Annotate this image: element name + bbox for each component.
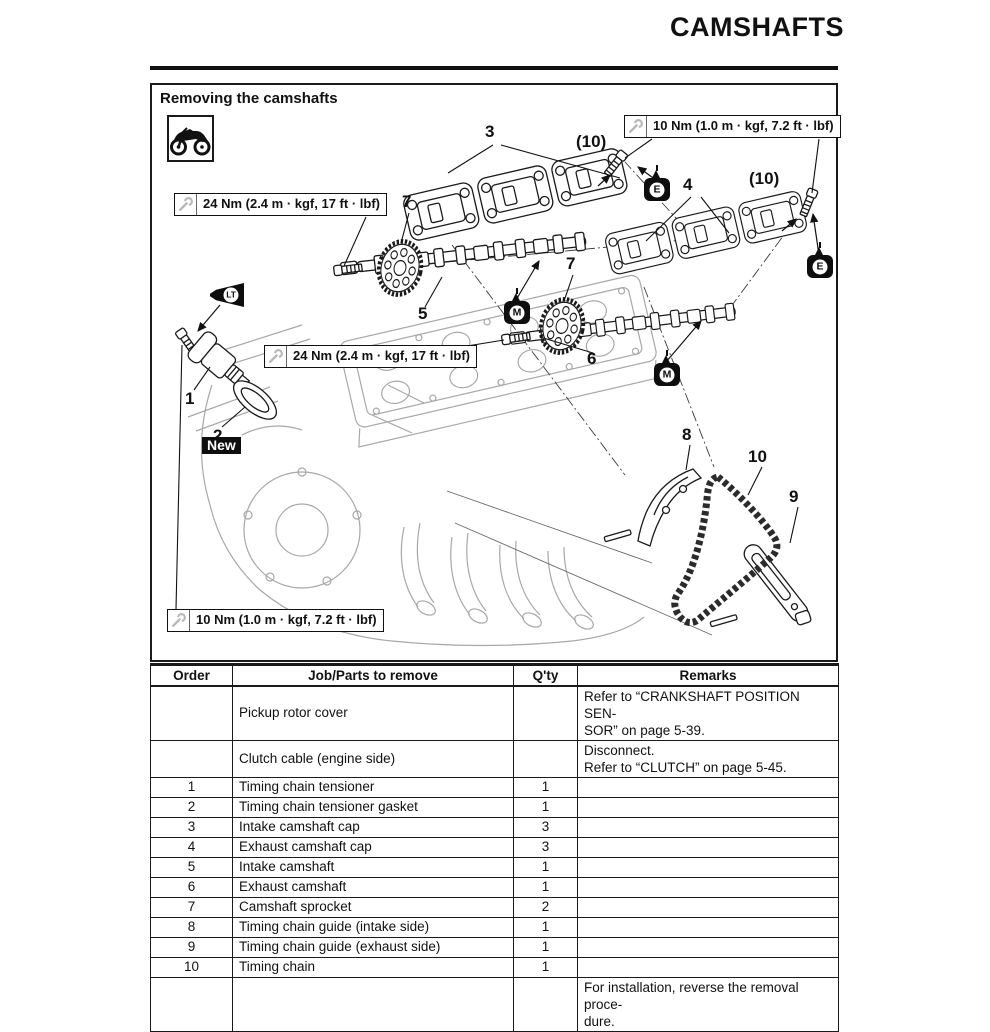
cell-job: Exhaust camshaft [233,878,514,898]
camshaft-sprocket-intake [373,237,427,300]
cell-order: 9 [151,938,233,958]
table-row: For installation, reverse the removal pr… [151,978,839,1032]
table-row: 4 Exhaust camshaft cap 3 [151,838,839,858]
engine-oil-letter: E [813,259,828,274]
cell-qty [514,741,578,778]
cell-qty [514,686,578,741]
page-title: CAMSHAFTS [670,12,844,43]
cell-order: 1 [151,778,233,798]
cell-order: 5 [151,858,233,878]
manual-page: { "page": { "title": "CAMSHAFTS" }, "dia… [0,0,990,990]
table-row: 8 Timing chain guide (intake side) 1 [151,918,839,938]
cell-order: 3 [151,818,233,838]
header-order: Order [151,665,233,687]
new-part-tag: New [202,437,241,454]
torque-callout-middle: 24 Nm (2.4 m · kgf, 17 ft · lbf) [264,345,477,368]
cell-job [233,978,514,1032]
callout-1: 1 [185,390,194,407]
cell-job: Timing chain [233,958,514,978]
torque-value: 24 Nm (2.4 m · kgf, 17 ft · lbf) [197,194,386,215]
callout-bolt-10-top: (10) [576,133,606,150]
section-heading: Removing the camshafts [160,90,338,107]
table-row: Clutch cable (engine side) Disconnect. R… [151,741,839,778]
cell-job: Timing chain guide (intake side) [233,918,514,938]
callout-3: 3 [485,123,494,140]
cell-job: Clutch cable (engine side) [233,741,514,778]
cell-order [151,978,233,1032]
torque-value: 24 Nm (2.4 m · kgf, 17 ft · lbf) [287,346,476,367]
cell-order: 6 [151,878,233,898]
cell-remarks [578,858,839,878]
cell-qty [514,978,578,1032]
moly-grease-icon: M [654,363,680,386]
cell-job: Intake camshaft cap [233,818,514,838]
motorcycle-icon [167,115,214,162]
table-row: 10 Timing chain 1 [151,958,839,978]
cell-qty: 1 [514,778,578,798]
wrench-icon [625,116,647,137]
header-qty: Q'ty [514,665,578,687]
callout-5: 5 [418,305,427,322]
callout-8: 8 [682,426,691,443]
table-row: 5 Intake camshaft 1 [151,858,839,878]
header-remarks: Remarks [578,665,839,687]
table-row: 9 Timing chain guide (exhaust side) 1 [151,938,839,958]
cell-remarks [578,878,839,898]
cell-remarks [578,818,839,838]
cell-order: 2 [151,798,233,818]
chain-guide-intake [638,469,701,546]
torque-value: 10 Nm (1.0 m · kgf, 7.2 ft · lbf) [647,116,840,137]
cell-qty: 1 [514,938,578,958]
cell-job: Timing chain tensioner gasket [233,798,514,818]
torque-callout-top-right: 10 Nm (1.0 m · kgf, 7.2 ft · lbf) [624,115,841,138]
torque-callout-upper-left: 24 Nm (2.4 m · kgf, 17 ft · lbf) [174,193,387,216]
cell-remarks [578,958,839,978]
cell-order: 4 [151,838,233,858]
table-row: 6 Exhaust camshaft 1 [151,878,839,898]
chain-pin [710,615,737,627]
title-rule [150,66,838,70]
cell-qty: 3 [514,818,578,838]
cell-qty: 1 [514,878,578,898]
table-row: 3 Intake camshaft cap 3 [151,818,839,838]
exploded-diagram [152,85,836,660]
cell-qty: 1 [514,918,578,938]
callout-6: 6 [587,350,596,367]
table-row: 7 Camshaft sprocket 2 [151,898,839,918]
moly-grease-letter: M [510,305,525,320]
header-job: Job/Parts to remove [233,665,514,687]
moly-grease-letter: M [660,367,675,382]
engine-oil-icon: E [807,255,833,278]
cell-qty: 3 [514,838,578,858]
cell-remarks: For installation, reverse the removal pr… [578,978,839,1032]
chain-pin [604,530,631,542]
cell-qty: 1 [514,958,578,978]
engine-oil-letter: E [650,182,665,197]
callout-7-intake: 7 [402,193,411,210]
moly-grease-icon: M [504,301,530,324]
intake-camshaft-caps [402,147,629,242]
cell-qty: 2 [514,898,578,918]
callout-10: 10 [748,448,767,465]
cell-remarks [578,778,839,798]
cell-remarks: Refer to “CRANKSHAFT POSITION SEN- SOR” … [578,686,839,741]
table-header-row: Order Job/Parts to remove Q'ty Remarks [151,665,839,687]
cell-job: Intake camshaft [233,858,514,878]
engine-oil-icon: E [644,178,670,201]
torque-callout-bottom-left: 10 Nm (1.0 m · kgf, 7.2 ft · lbf) [167,609,384,632]
cell-job: Exhaust camshaft cap [233,838,514,858]
parts-table: Order Job/Parts to remove Q'ty Remarks P… [150,663,839,1032]
cell-remarks [578,798,839,818]
table-row: 1 Timing chain tensioner 1 [151,778,839,798]
wrench-icon [265,346,287,367]
table-row: 2 Timing chain tensioner gasket 1 [151,798,839,818]
cell-remarks [578,838,839,858]
callout-9: 9 [789,488,798,505]
cell-order [151,686,233,741]
cell-order: 10 [151,958,233,978]
cell-remarks [578,938,839,958]
cell-remarks: Disconnect. Refer to “CLUTCH” on page 5-… [578,741,839,778]
cell-qty: 1 [514,798,578,818]
cell-order: 7 [151,898,233,918]
cell-order [151,741,233,778]
wrench-icon [168,610,190,631]
cell-qty: 1 [514,858,578,878]
cell-remarks [578,918,839,938]
cell-job: Camshaft sprocket [233,898,514,918]
table-body: Pickup rotor cover Refer to “CRANKSHAFT … [151,686,839,1032]
cell-job: Timing chain tensioner [233,778,514,798]
wrench-icon [175,194,197,215]
table-row: Pickup rotor cover Refer to “CRANKSHAFT … [151,686,839,741]
callout-4: 4 [683,176,692,193]
torque-value: 10 Nm (1.0 m · kgf, 7.2 ft · lbf) [190,610,383,631]
locking-agent-letter: LT [224,288,239,303]
exploded-view-panel: Removing the camshafts 10 Nm (1.0 m · kg… [150,83,838,662]
cell-job: Timing chain guide (exhaust side) [233,938,514,958]
cell-order: 8 [151,918,233,938]
callout-7-exhaust: 7 [566,255,575,272]
callout-bolt-10-right: (10) [749,170,779,187]
intake-camshaft [340,232,586,278]
projection-lines [447,491,712,635]
cell-job: Pickup rotor cover [233,686,514,741]
camshaft-sprocket-exhaust [535,295,589,358]
cell-remarks [578,898,839,918]
